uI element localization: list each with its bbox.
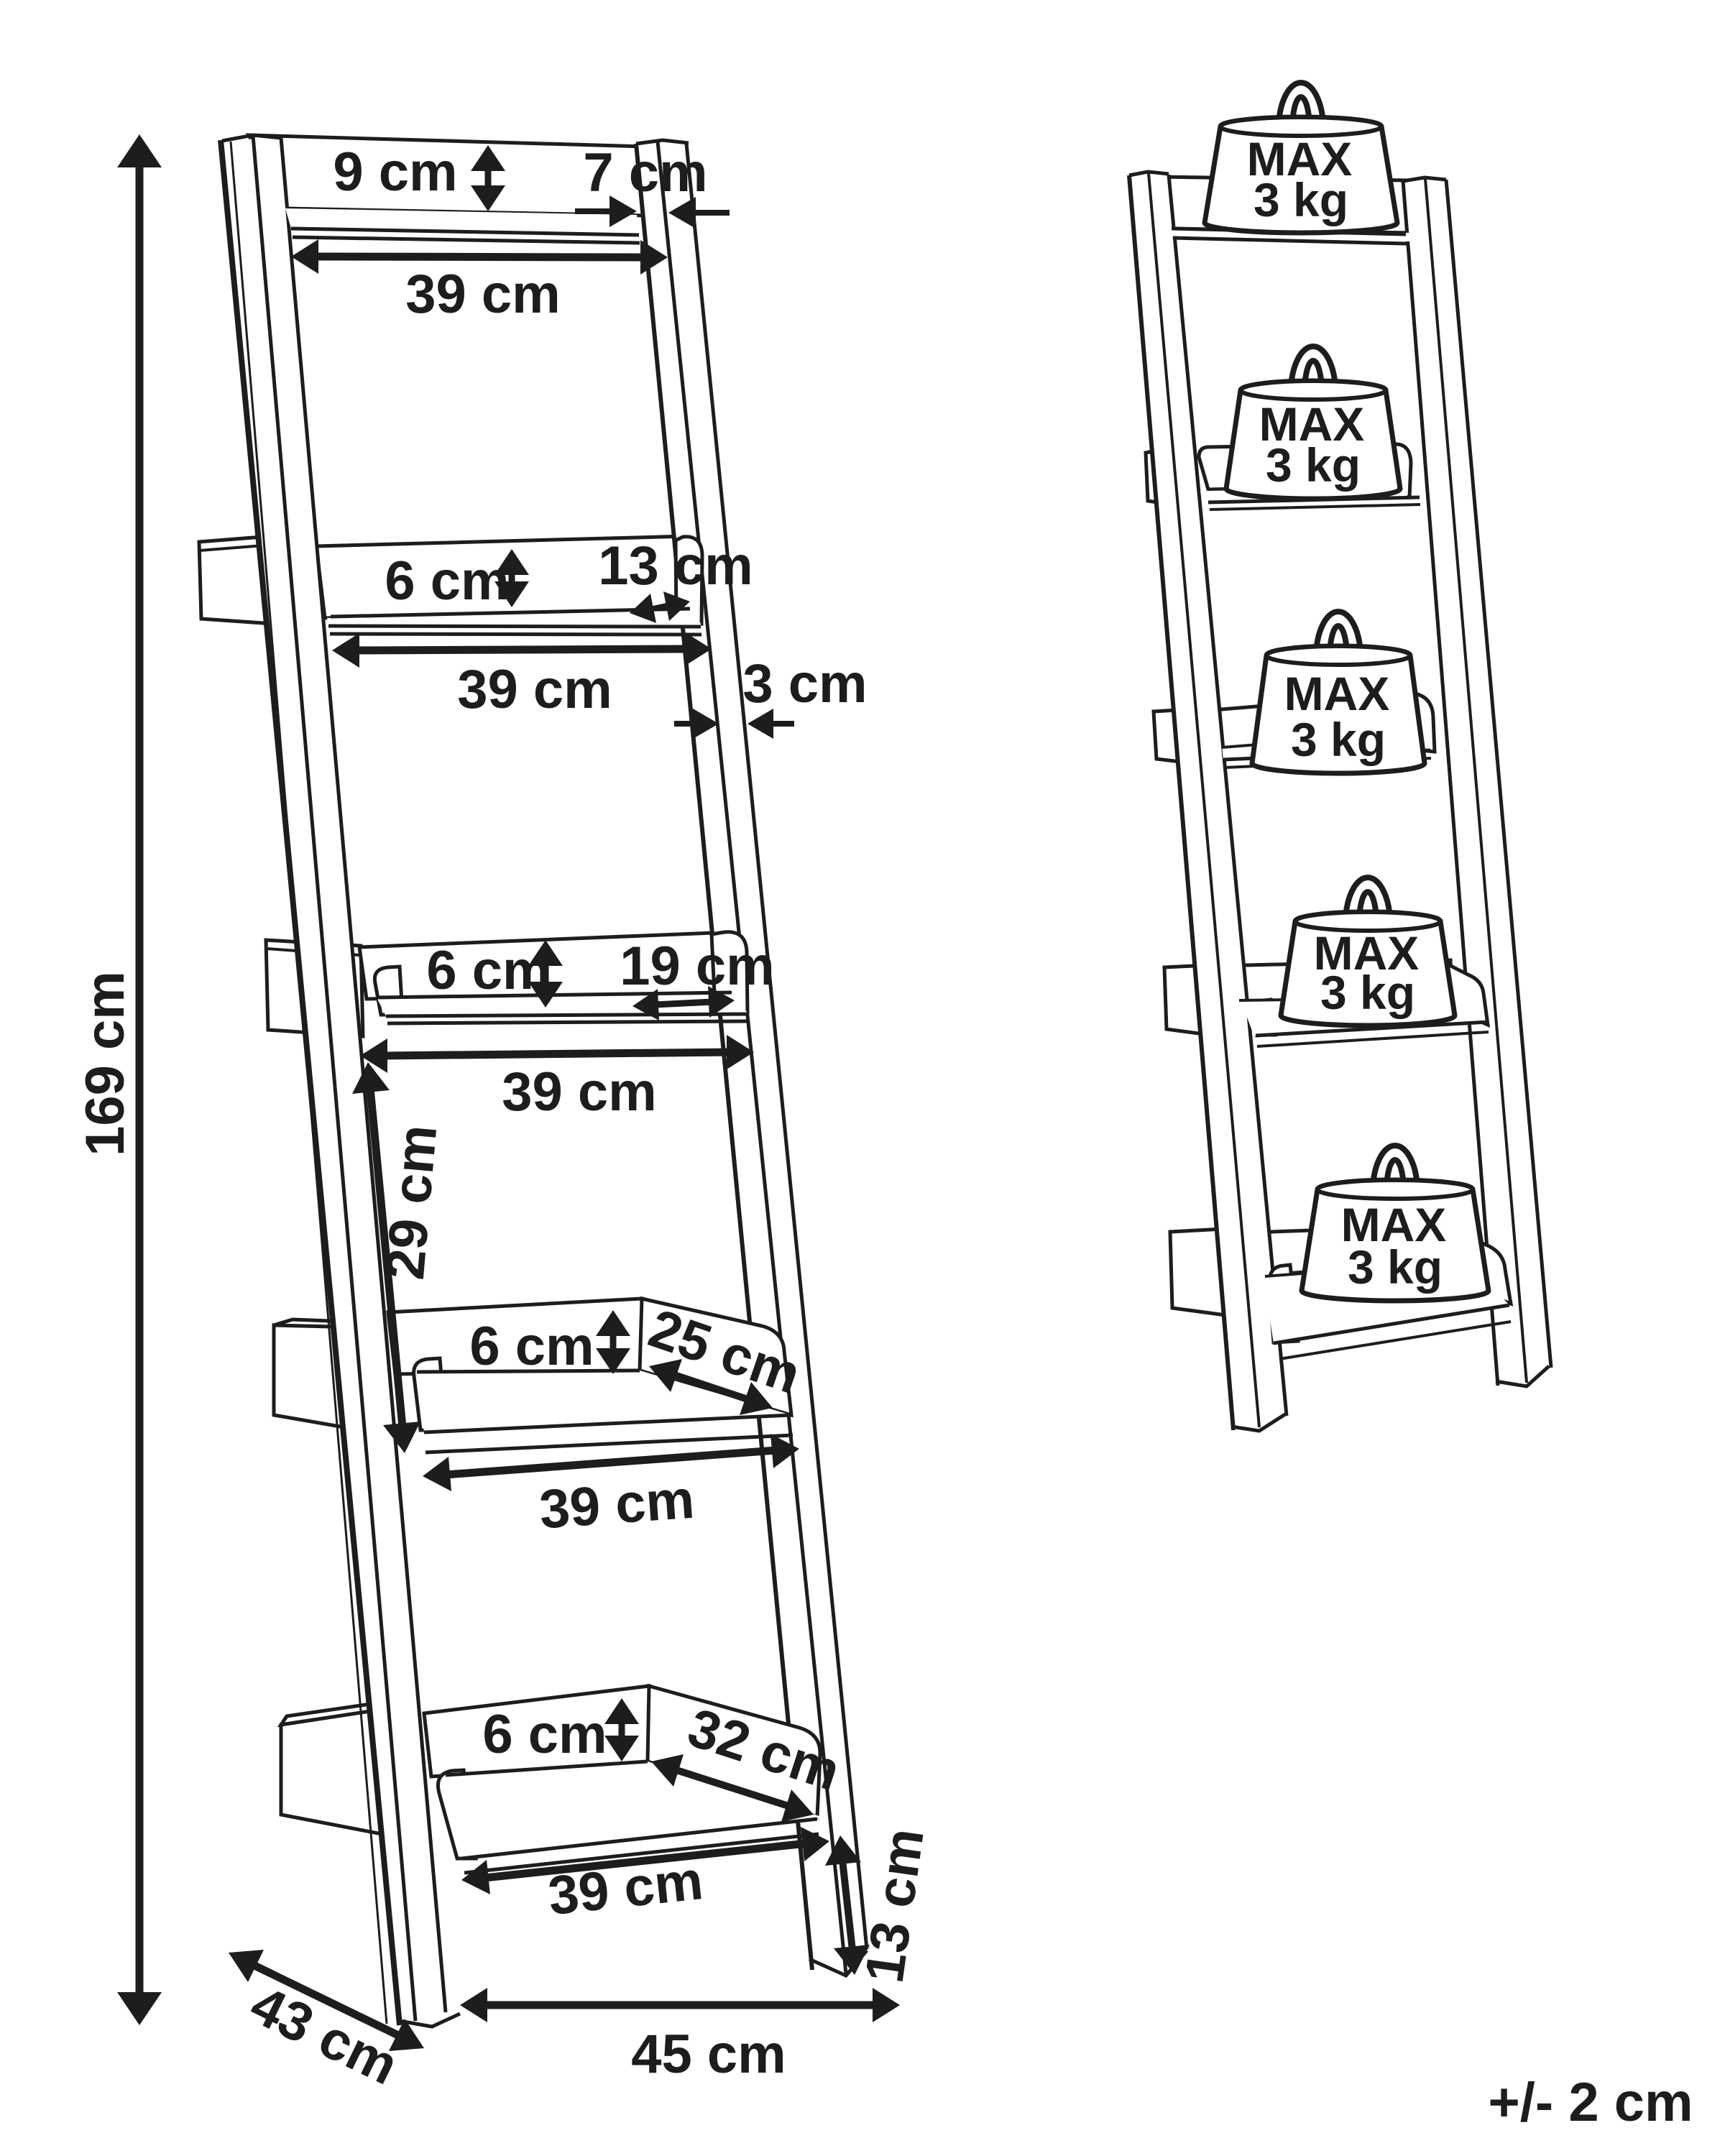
svg-text:3 kg: 3 kg	[1320, 966, 1415, 1019]
svg-text:39 cm: 39 cm	[457, 659, 612, 720]
svg-text:+/- 2 cm: +/- 2 cm	[1488, 2072, 1693, 2133]
svg-text:3 cm: 3 cm	[742, 653, 867, 714]
svg-text:9 cm: 9 cm	[333, 142, 457, 203]
svg-text:MAX: MAX	[1284, 667, 1390, 720]
svg-text:169 cm: 169 cm	[75, 971, 136, 1156]
svg-text:45 cm: 45 cm	[631, 2024, 786, 2085]
svg-text:6 cm: 6 cm	[482, 1704, 607, 1765]
svg-text:39 cm: 39 cm	[502, 1061, 657, 1123]
svg-text:3 kg: 3 kg	[1253, 173, 1348, 226]
svg-text:3 kg: 3 kg	[1266, 438, 1361, 492]
svg-text:6 cm: 6 cm	[469, 1316, 594, 1377]
svg-text:39 cm: 39 cm	[405, 264, 561, 325]
svg-text:6 cm: 6 cm	[426, 940, 551, 1001]
svg-text:3 kg: 3 kg	[1291, 713, 1386, 766]
svg-text:6 cm: 6 cm	[385, 550, 509, 612]
svg-text:19 cm: 19 cm	[620, 936, 775, 997]
svg-text:7 cm: 7 cm	[583, 142, 707, 203]
svg-text:3 kg: 3 kg	[1348, 1240, 1443, 1294]
svg-text:13 cm: 13 cm	[598, 535, 753, 596]
svg-text:39 cm: 39 cm	[538, 1469, 696, 1541]
